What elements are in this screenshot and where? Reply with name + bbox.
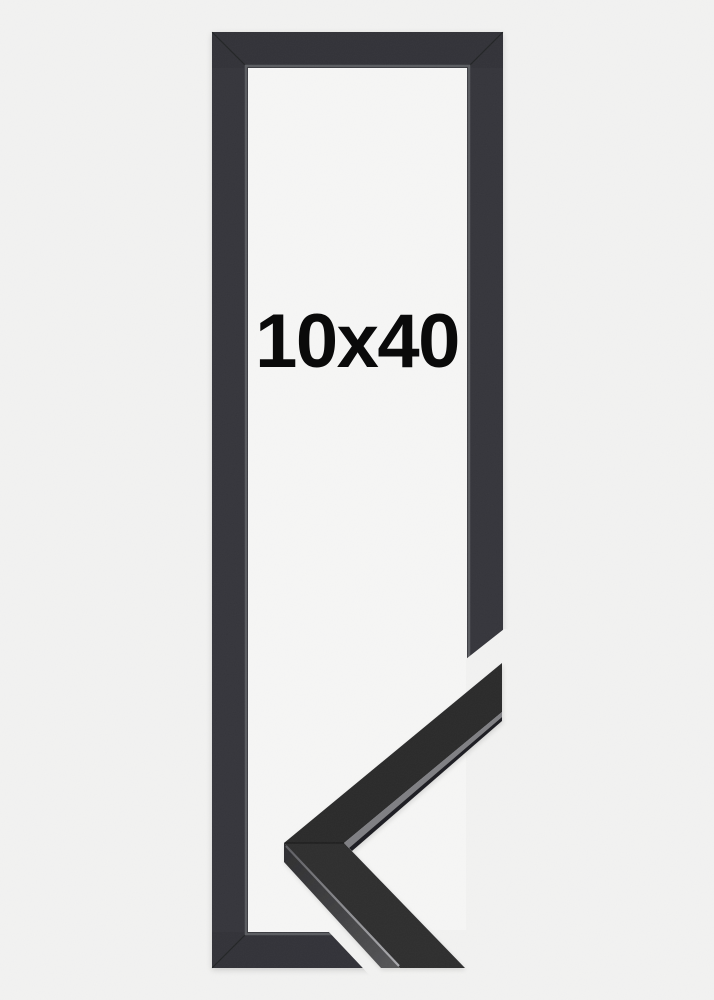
product-image: 10x40 [0, 0, 714, 1000]
size-label: 10x40 [255, 299, 459, 384]
frame-product-canvas: 10x40 [0, 0, 714, 1000]
photo-grain-overlay [0, 0, 714, 1000]
